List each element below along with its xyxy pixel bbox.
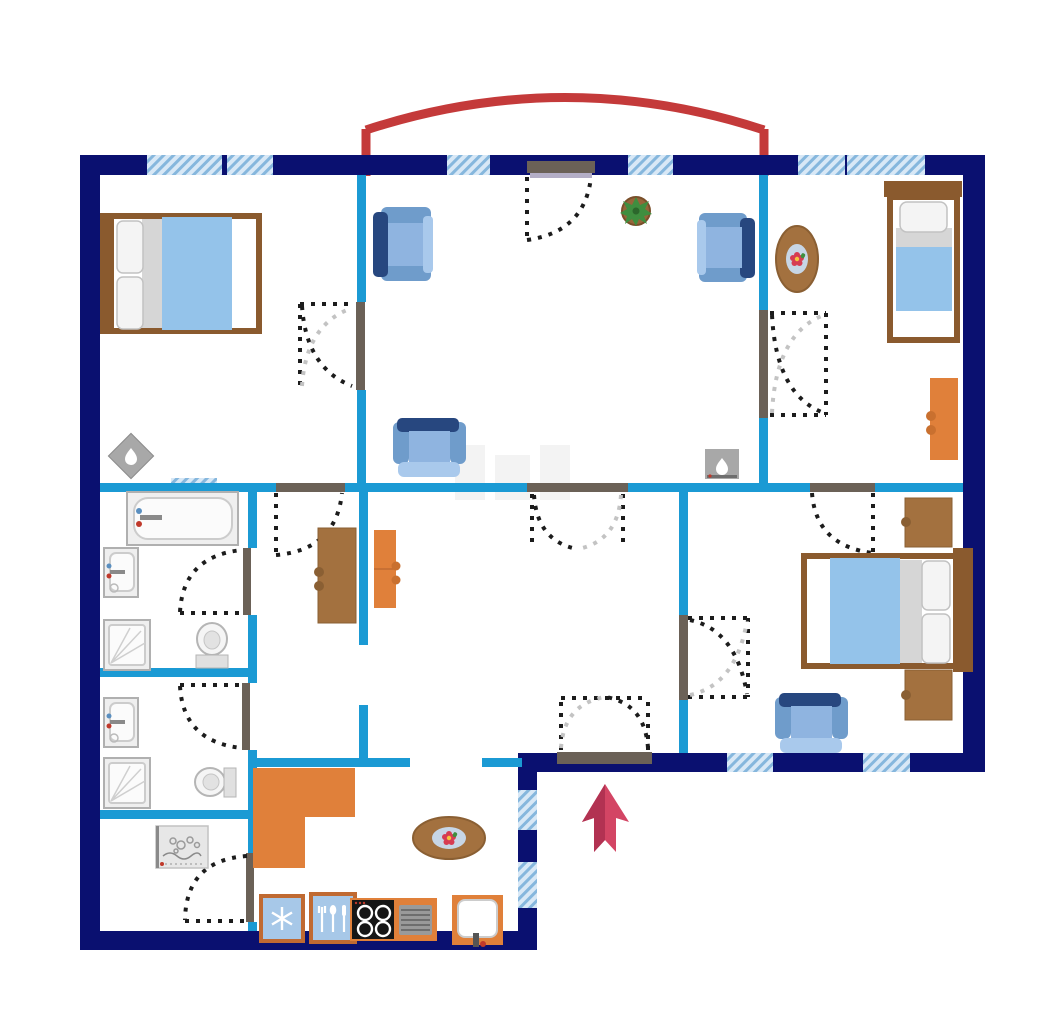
iwall (248, 922, 257, 931)
oval-table (413, 817, 485, 859)
door-arc (180, 686, 242, 748)
faucet-hot (107, 724, 112, 729)
pillow (117, 277, 143, 329)
armchair-right (697, 213, 755, 282)
balcony-arc-curve (366, 98, 764, 131)
wall-porch-left (518, 753, 537, 950)
toilet-seat (204, 631, 220, 649)
iwall (759, 418, 768, 483)
armchair-left (373, 207, 433, 281)
door-arc-alt (578, 495, 621, 549)
iwall (357, 390, 366, 483)
desk (314, 528, 356, 623)
cabinet (374, 530, 401, 608)
window (518, 862, 537, 908)
iwall (359, 492, 368, 645)
faucet-cold (107, 564, 112, 569)
iwall (679, 700, 688, 753)
chair-back (740, 218, 755, 278)
sink-faucet (110, 720, 125, 724)
faucet-cold (107, 714, 112, 719)
door-threshold (527, 483, 628, 492)
door-arc-alt (561, 697, 605, 748)
nightstand-knob (901, 517, 911, 527)
sink (104, 698, 138, 747)
door-threshold (243, 548, 251, 615)
toilet (196, 623, 228, 668)
bed-blanket (830, 558, 900, 664)
washing-machine (156, 826, 208, 868)
toilet-seat (203, 774, 219, 790)
window (518, 790, 537, 830)
chair-back (397, 418, 459, 432)
stove-unit (350, 898, 437, 941)
pillow (900, 202, 947, 232)
tub-faucet (140, 515, 162, 520)
door-arc-alt (690, 621, 747, 695)
utensil-cabinet (311, 894, 355, 942)
armrest (699, 267, 747, 282)
bed-headboard (100, 213, 114, 334)
fridge (261, 896, 303, 941)
door-threshold (246, 853, 254, 922)
iwall (100, 483, 276, 492)
iwall (628, 483, 810, 492)
door-arc (606, 697, 648, 748)
wall-left (80, 155, 100, 950)
chair-seat (791, 706, 832, 738)
washer-dot (160, 862, 164, 866)
faucet-hot (107, 574, 112, 579)
bed-blanket (896, 247, 952, 311)
nightstand (901, 670, 952, 720)
door-arc-alt (302, 308, 352, 386)
iwall (482, 758, 522, 767)
washer-edge (156, 826, 159, 868)
chair-front (780, 738, 842, 753)
chair-back (373, 212, 388, 277)
armrest (699, 213, 747, 228)
chair-front (423, 216, 433, 273)
door-sill (530, 173, 592, 178)
desk-knob (314, 567, 324, 577)
pillow (117, 221, 143, 273)
iwall (759, 175, 768, 310)
door-arc (302, 306, 352, 386)
iwall (248, 492, 257, 548)
pillow (922, 614, 950, 663)
window (147, 155, 222, 175)
nightstand-top (905, 498, 952, 547)
oval-table (776, 226, 818, 292)
door-threshold (356, 302, 365, 390)
closet (314, 528, 356, 623)
bedroom-top-left (100, 213, 259, 479)
fireplace-dot (708, 474, 711, 477)
bed-headboard (953, 548, 973, 672)
window (447, 155, 490, 175)
nightstand-top (905, 670, 952, 720)
bathroom (104, 492, 238, 670)
bathtub (127, 492, 238, 545)
sink-faucet (473, 933, 479, 947)
hallway (374, 530, 401, 608)
desk-knob (926, 425, 936, 435)
iwall (357, 175, 366, 302)
iwall (679, 492, 688, 615)
faucet-hot (136, 521, 142, 527)
floor-plan (0, 0, 1039, 1024)
window (798, 155, 845, 175)
chair-back (779, 693, 841, 707)
fireplace (705, 449, 739, 479)
double-bed (100, 213, 259, 334)
arrow-shade (582, 784, 605, 852)
bed-sheet (142, 219, 162, 328)
living-room (373, 197, 755, 479)
desk (926, 378, 958, 460)
window (847, 155, 925, 175)
armchair-middle (393, 418, 466, 477)
window (227, 155, 273, 175)
door-threshold (810, 483, 875, 492)
nightstand-knob (901, 690, 911, 700)
door-arc (534, 495, 577, 549)
door-arc (527, 177, 591, 240)
chair-front (398, 462, 460, 477)
floor-plan-canvas (0, 0, 1039, 1024)
iwall (248, 758, 410, 767)
entrance-arrow-icon (582, 784, 629, 852)
door-arc (180, 550, 242, 612)
iwall (345, 483, 527, 492)
desk-knob (926, 411, 936, 421)
window (863, 753, 910, 772)
wall-right (963, 155, 985, 772)
potted-plant (620, 197, 652, 226)
single-bed (884, 181, 962, 340)
door-threshold (759, 310, 768, 418)
window (628, 155, 673, 175)
pillow (922, 561, 950, 610)
nightstand (901, 498, 952, 547)
window (727, 753, 773, 772)
kitchen-counter (253, 768, 355, 868)
bed-headboard (884, 181, 962, 197)
toilet-tank (196, 655, 228, 668)
toilet-tank (224, 768, 236, 797)
laundry (156, 826, 208, 868)
faucet-cold (136, 508, 142, 514)
faucet-hot (480, 941, 486, 947)
bedroom-bottom-right (775, 498, 973, 753)
shower (104, 758, 150, 808)
door-threshold-balcony (527, 161, 595, 173)
bed-sheet (900, 560, 922, 663)
desk-knob (314, 581, 324, 591)
iwall (359, 705, 368, 767)
double-bed (804, 548, 973, 672)
door-threshold (242, 683, 250, 750)
sink-faucet (110, 570, 125, 574)
door-threshold-entrance (557, 752, 652, 764)
sink-unit (452, 895, 503, 947)
shower (104, 620, 150, 670)
cabinet-knob (392, 576, 401, 585)
sink (104, 548, 138, 597)
chair-front (697, 220, 706, 275)
door-threshold (679, 615, 688, 700)
iwall (875, 483, 963, 492)
toilet (195, 768, 236, 797)
fireplace (108, 433, 153, 478)
plant-center (633, 208, 640, 215)
door-arc (812, 493, 873, 553)
cabinet-knob (392, 562, 401, 571)
door-arc (690, 620, 747, 694)
bedroom-top-right (776, 181, 962, 460)
sink-basin (458, 900, 497, 937)
bed-blanket (162, 217, 232, 330)
door-threshold (276, 483, 345, 492)
iwall (100, 810, 257, 819)
washer-body (156, 826, 208, 868)
stove-knobs (355, 902, 365, 904)
chair-seat (388, 223, 427, 266)
wc (104, 698, 236, 808)
armchair (775, 693, 848, 753)
kitchen (253, 768, 503, 947)
chair-seat (409, 431, 450, 463)
desk-top (318, 528, 356, 623)
chair-seat (704, 227, 742, 268)
